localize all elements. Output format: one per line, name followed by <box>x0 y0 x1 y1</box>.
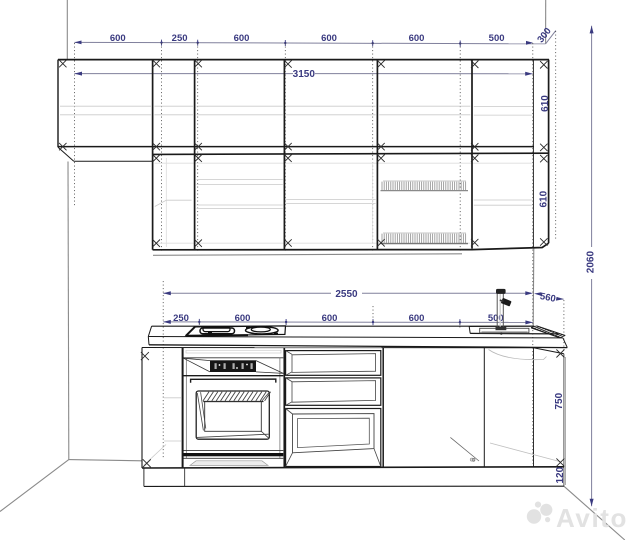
svg-text:600: 600 <box>409 313 425 324</box>
svg-text:250: 250 <box>172 33 188 44</box>
svg-text:2060: 2060 <box>586 251 597 274</box>
svg-text:500: 500 <box>488 313 504 324</box>
svg-text:600: 600 <box>110 33 126 44</box>
svg-text:610: 610 <box>538 190 549 207</box>
svg-text:600: 600 <box>234 33 250 44</box>
svg-text:120: 120 <box>555 466 566 483</box>
svg-text:600: 600 <box>321 33 337 44</box>
svg-text:Avito: Avito <box>556 503 628 533</box>
svg-text:3150: 3150 <box>293 69 316 80</box>
svg-text:2550: 2550 <box>335 289 358 300</box>
svg-text:250: 250 <box>173 313 189 324</box>
svg-text:750: 750 <box>554 392 565 409</box>
svg-text:600: 600 <box>322 313 338 324</box>
svg-text:600: 600 <box>235 313 251 324</box>
svg-text:600: 600 <box>409 33 425 44</box>
svg-text:500: 500 <box>489 33 505 44</box>
svg-text:610: 610 <box>540 95 551 112</box>
